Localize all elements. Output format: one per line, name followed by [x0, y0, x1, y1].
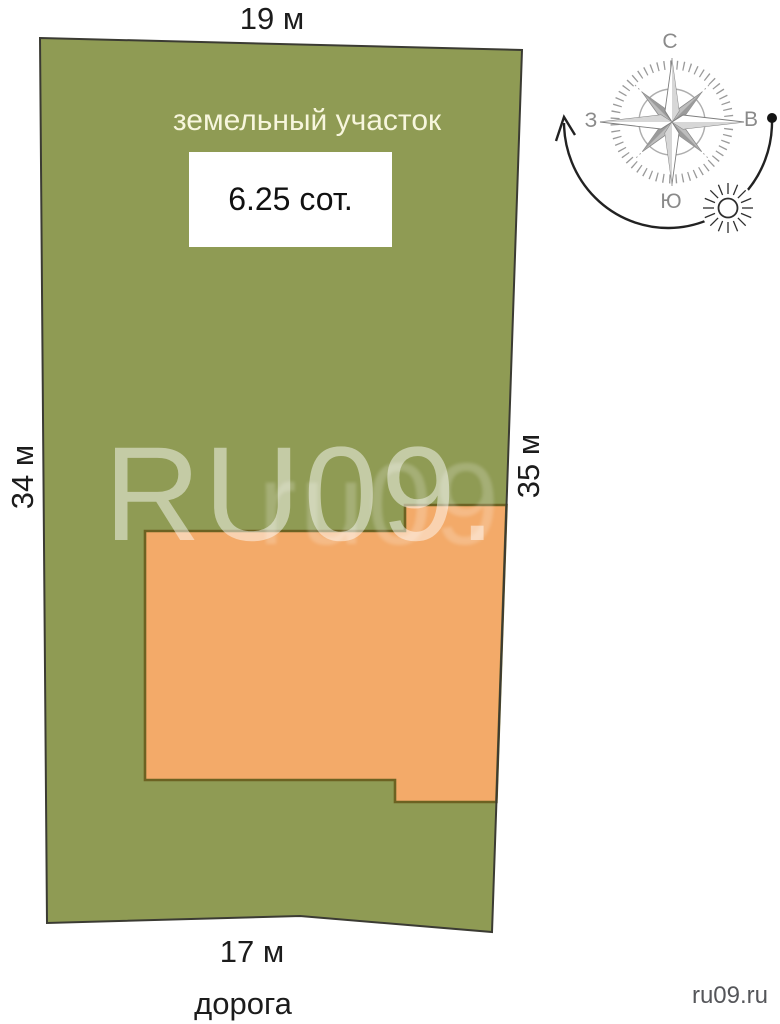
- compass-east-label: В: [744, 108, 758, 132]
- east-dot-icon: [767, 113, 777, 123]
- area-box: 6.25 сот.: [189, 152, 392, 247]
- dimension-bottom: 17 м: [220, 934, 284, 970]
- dimension-right: 35 м: [511, 434, 547, 498]
- road-label: дорога: [194, 986, 292, 1022]
- compass-rose-icon: [600, 58, 744, 186]
- dimension-left: 34 м: [5, 445, 41, 509]
- land-plot-scheme: ru09.ru RU09. 19 м 34 м 35 м 17 м дорога…: [0, 0, 780, 1024]
- dimension-top: 19 м: [240, 1, 304, 37]
- compass-south-label: Ю: [660, 190, 681, 214]
- compass-west-label: З: [585, 109, 598, 133]
- building-footprint: [145, 505, 507, 802]
- area-value: 6.25 сот.: [228, 181, 353, 218]
- plot-title: земельный участок: [173, 104, 441, 138]
- compass-north-label: С: [662, 30, 677, 54]
- sun-icon: [701, 181, 755, 235]
- site-credit: ru09.ru: [692, 982, 768, 1010]
